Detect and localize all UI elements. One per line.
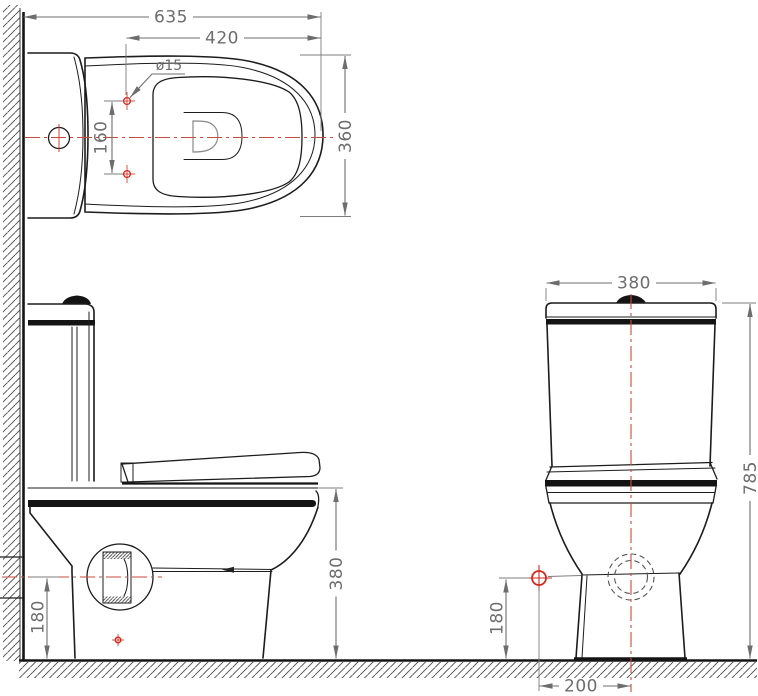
dim-label-785: 785 (741, 461, 758, 495)
fixing-point-marker-side (112, 634, 124, 646)
dim-label-180-side: 180 (29, 600, 49, 634)
floor-section (19, 661, 757, 679)
side-view: 380 180 (0, 296, 347, 659)
dim-supply-height-180-front: 180 (488, 576, 582, 659)
dim-rim-height-380-side: 380 (319, 488, 347, 659)
seat-flange-left (546, 466, 552, 480)
rim-left-edge-front (546, 487, 549, 503)
tank-plan-inner-curve (74, 57, 83, 214)
seat-flange-right (710, 463, 717, 480)
dim-label-635: 635 (154, 8, 188, 28)
dim-label-360: 360 (336, 119, 356, 153)
outlet-wall-hatch-bottom (104, 597, 131, 604)
tank-lid-joint-side (28, 320, 95, 326)
dim-outlet-height-180-side: 180 (29, 577, 60, 659)
seat-lid-inner-outline (85, 63, 315, 207)
tank-left-edge (547, 325, 552, 467)
hinge-hole-bottom (119, 165, 135, 183)
tank-right-edge (710, 325, 715, 467)
front-view: 380 785 180 200 (488, 274, 758, 696)
bowl-front-contour (263, 507, 318, 658)
dim-overall-height-785: 785 (722, 303, 758, 659)
rim-right-edge-front (713, 487, 716, 503)
wall-section (3, 5, 24, 661)
bowl-back-contour (30, 507, 75, 658)
dim-label-380-side: 380 (327, 557, 347, 591)
seat-lid-side (122, 452, 320, 482)
dim-label-420: 420 (205, 29, 239, 49)
dim-label-180-front: 180 (488, 601, 508, 635)
toilet-dimension-drawing: 635 420 ø15 160 360 (0, 0, 758, 696)
water-spot-outline (193, 121, 218, 152)
outlet-pipe-line-1 (153, 568, 272, 570)
outlet-wall-hatch-top (104, 553, 131, 560)
dim-bowl-width-360: 360 (300, 55, 356, 217)
pedestal-right-edge (679, 573, 685, 658)
pedestal-left-inner-line (582, 576, 587, 658)
rim-band-side (28, 500, 316, 507)
bowl-right-curve-front (680, 503, 712, 574)
wall-hatch (3, 5, 20, 661)
dim-label-380-front: 380 (617, 274, 651, 294)
technical-drawing-canvas: 635 420 ø15 160 360 (0, 0, 758, 696)
pedestal-left-edge (576, 575, 582, 658)
dim-label-200: 200 (564, 677, 598, 696)
tank-side-outline (28, 304, 94, 481)
dim-label-dia15: ø15 (156, 58, 182, 74)
seat-lid-outer-outline (85, 56, 323, 214)
flush-button-side (62, 296, 91, 305)
top-view: 635 420 ø15 160 360 (24, 8, 357, 219)
dim-supply-offset-200: 200 (539, 587, 631, 696)
bowl-left-curve-front (550, 503, 582, 574)
floor-hatch (19, 662, 757, 678)
dim-label-160: 160 (92, 121, 112, 155)
rim-front-corner (316, 491, 319, 506)
